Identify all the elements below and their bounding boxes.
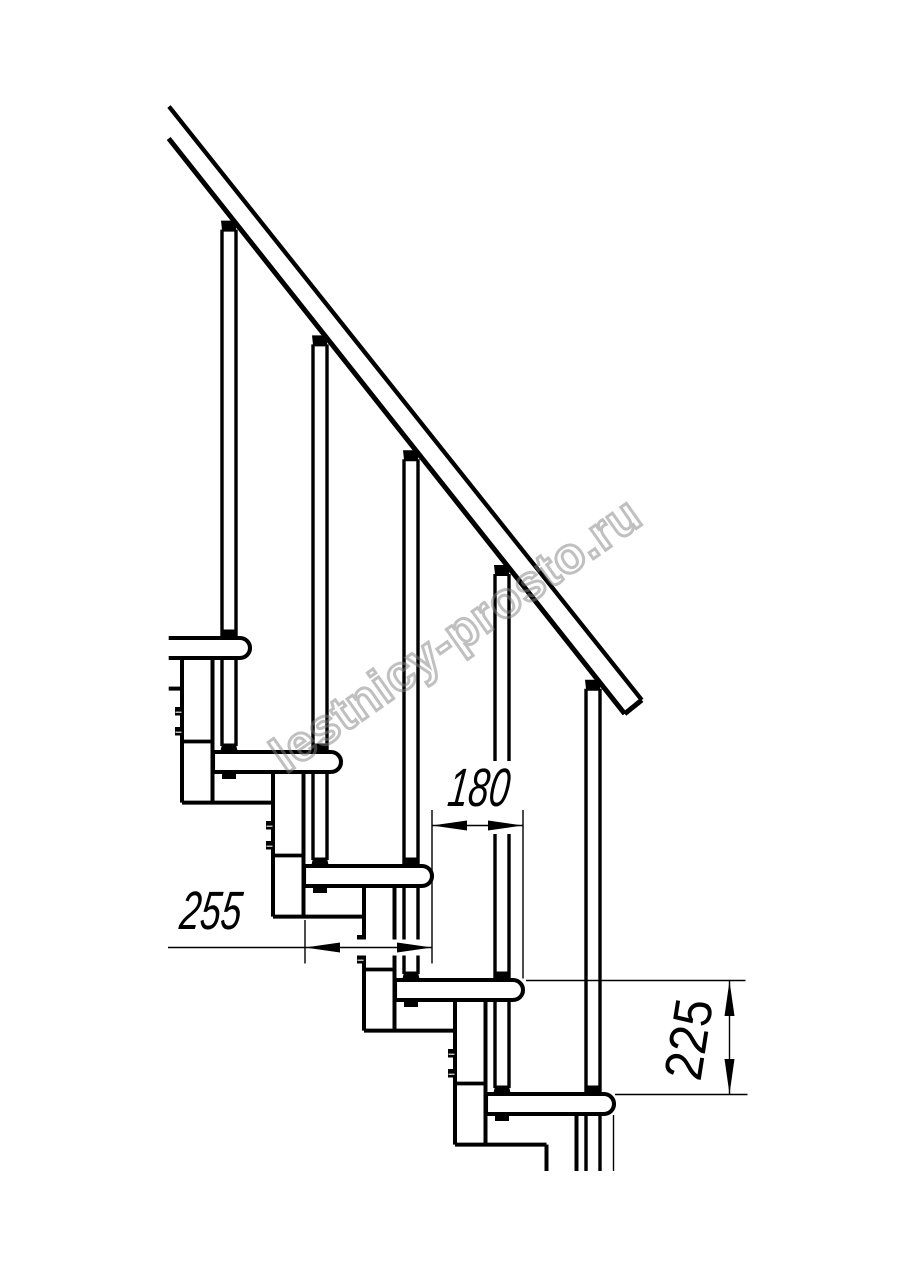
svg-text:255: 255 [176, 880, 245, 941]
svg-text:180: 180 [445, 757, 514, 818]
svg-text:225: 225 [652, 1000, 725, 1081]
